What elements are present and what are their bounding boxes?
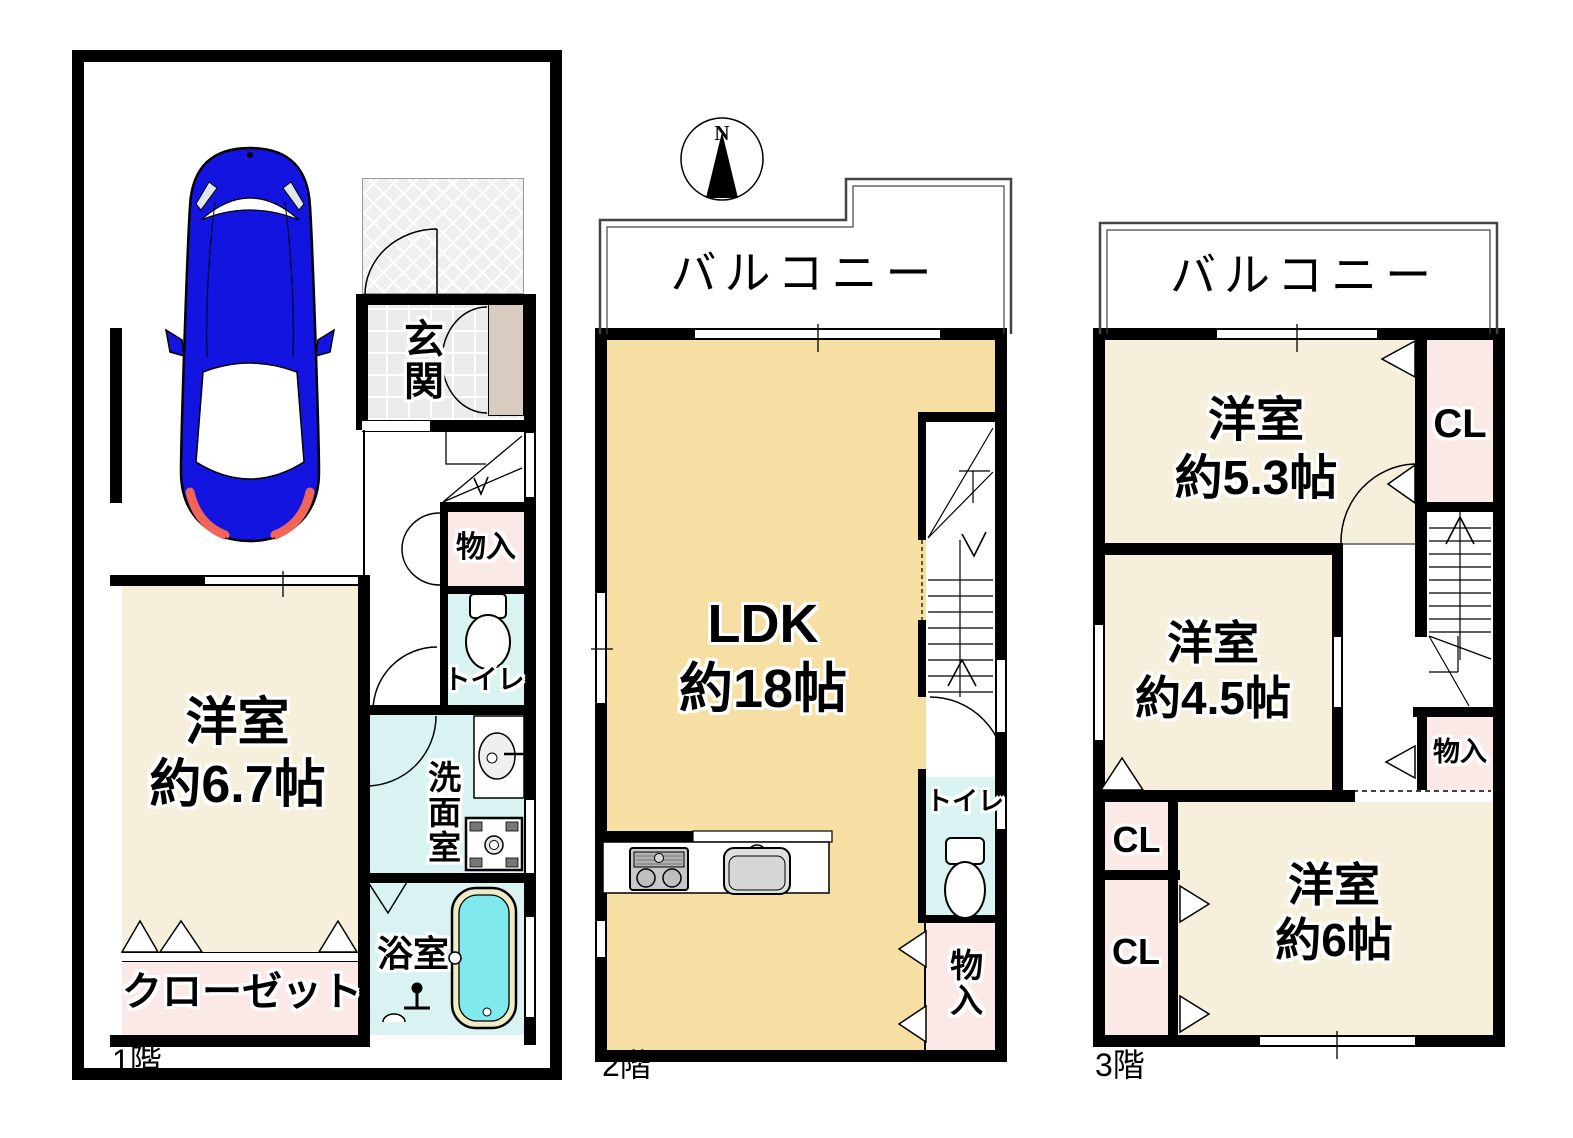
- balcony-label-3f: バルコニー: [1170, 248, 1430, 303]
- bedroom53-name: 洋室: [1208, 394, 1304, 447]
- closet1-label-3f: CL: [1427, 400, 1493, 448]
- window: [595, 593, 607, 703]
- closet2-label-3f: CL: [1105, 818, 1168, 861]
- compass-north-label: N: [714, 121, 729, 145]
- genkan-label: 玄関: [396, 318, 444, 402]
- bedroom6-label: 洋室 約6帖: [1178, 858, 1490, 968]
- bedroom6-size: 約6帖: [1275, 914, 1393, 966]
- window: [1217, 328, 1377, 340]
- washroom-label: 洗面室: [422, 760, 462, 865]
- window: [524, 433, 536, 497]
- compass-icon: N: [681, 118, 763, 200]
- bathroom-label: 浴室: [370, 932, 456, 975]
- bedroom45-label: 洋室 約4.5帖: [1093, 616, 1333, 726]
- balcony-label-2f: バルコニー: [640, 246, 970, 301]
- storage-label-1f: 物入: [448, 530, 524, 566]
- closet3-label-3f: CL: [1098, 930, 1174, 973]
- window: [205, 575, 358, 586]
- bedroom-size-1f: 約6.7帖: [149, 756, 325, 814]
- window: [995, 660, 1007, 732]
- window: [595, 921, 607, 957]
- ldk-label: LDK 約18帖: [607, 592, 919, 722]
- toilet-label-2f: トイレ: [926, 786, 996, 817]
- bedroom-name-1f: 洋室: [185, 694, 289, 752]
- storage-label-2f: 物入: [944, 948, 984, 1018]
- bedroom45-size: 約4.5帖: [1135, 672, 1291, 724]
- floor1-label: 1階: [112, 1042, 162, 1080]
- toilet-label-1f: トイレ: [442, 664, 526, 696]
- window: [524, 800, 536, 873]
- closet-label-1f: クローゼット: [122, 968, 358, 1016]
- window: [1332, 637, 1343, 707]
- storage-label-3f: 物入: [1427, 736, 1493, 768]
- ldk-size: 約18帖: [679, 659, 847, 719]
- bedroom-label-1f: 洋室 約6.7帖: [115, 692, 360, 817]
- bedroom45-name: 洋室: [1167, 617, 1259, 669]
- bedroom6-name: 洋室: [1288, 859, 1380, 911]
- window: [695, 328, 940, 340]
- bedroom53-size: 約5.3帖: [1175, 452, 1338, 505]
- ldk-name: LDK: [708, 594, 819, 654]
- bedroom53-label: 洋室 約5.3帖: [1100, 392, 1412, 507]
- floor2-label: 2階: [602, 1046, 652, 1084]
- floor3-label: 3階: [1095, 1046, 1145, 1084]
- floor-plan: N: [0, 0, 1573, 1138]
- window: [1260, 1035, 1415, 1047]
- window: [524, 917, 536, 1017]
